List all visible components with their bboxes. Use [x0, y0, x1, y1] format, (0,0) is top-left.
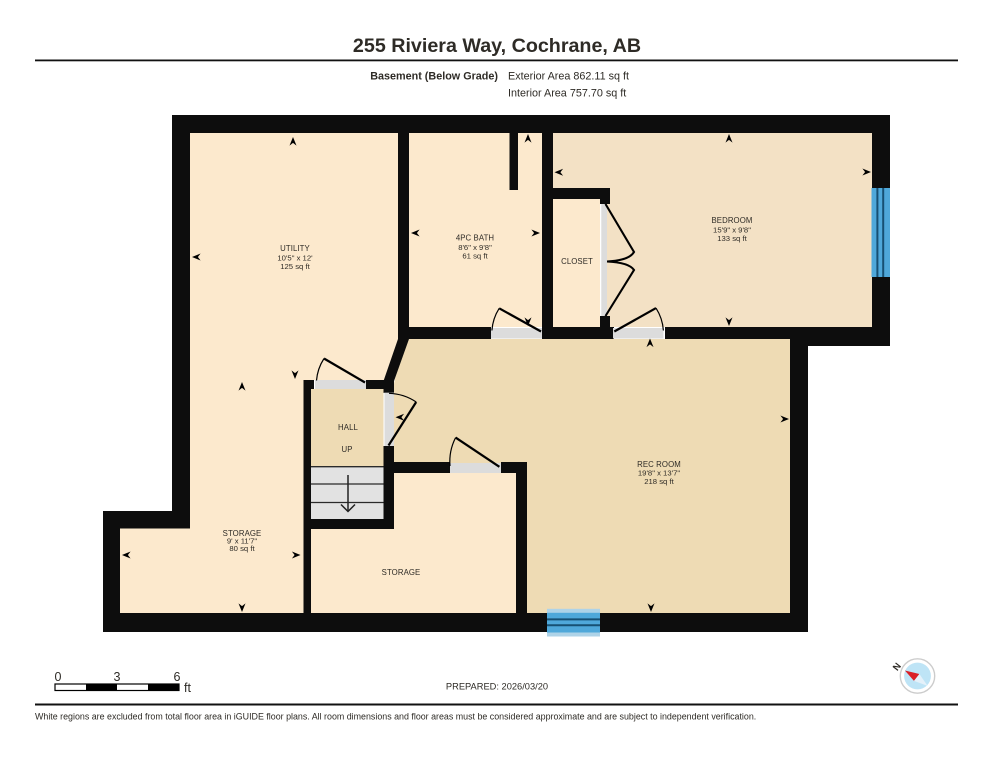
svg-text:CLOSET: CLOSET: [561, 257, 593, 266]
svg-text:BEDROOM: BEDROOM: [712, 216, 753, 225]
svg-text:Interior Area 757.70 sq ft: Interior Area 757.70 sq ft: [508, 88, 626, 100]
svg-text:Exterior Area 862.11 sq ft: Exterior Area 862.11 sq ft: [508, 71, 629, 83]
svg-text:133 sq ft: 133 sq ft: [717, 234, 747, 243]
svg-text:80 sq ft: 80 sq ft: [229, 544, 255, 553]
svg-text:STORAGE: STORAGE: [382, 568, 421, 577]
svg-text:ft: ft: [184, 681, 191, 695]
svg-text:White regions are excluded fro: White regions are excluded from total fl…: [35, 712, 756, 722]
svg-text:UP: UP: [341, 445, 352, 454]
svg-text:PREPARED: 2026/03/20: PREPARED: 2026/03/20: [446, 682, 548, 692]
svg-text:HALL: HALL: [338, 423, 358, 432]
svg-text:218 sq ft: 218 sq ft: [644, 477, 674, 486]
svg-text:UTILITY: UTILITY: [280, 244, 310, 253]
svg-text:255 Riviera Way, Cochrane, AB: 255 Riviera Way, Cochrane, AB: [353, 35, 641, 57]
svg-text:4PC BATH: 4PC BATH: [456, 234, 494, 243]
svg-text:Basement (Below Grade): Basement (Below Grade): [370, 71, 498, 83]
svg-text:0: 0: [55, 670, 62, 684]
svg-text:125 sq ft: 125 sq ft: [280, 262, 310, 271]
svg-text:3: 3: [114, 670, 121, 684]
svg-text:61 sq ft: 61 sq ft: [462, 252, 488, 261]
svg-text:6: 6: [174, 670, 181, 684]
